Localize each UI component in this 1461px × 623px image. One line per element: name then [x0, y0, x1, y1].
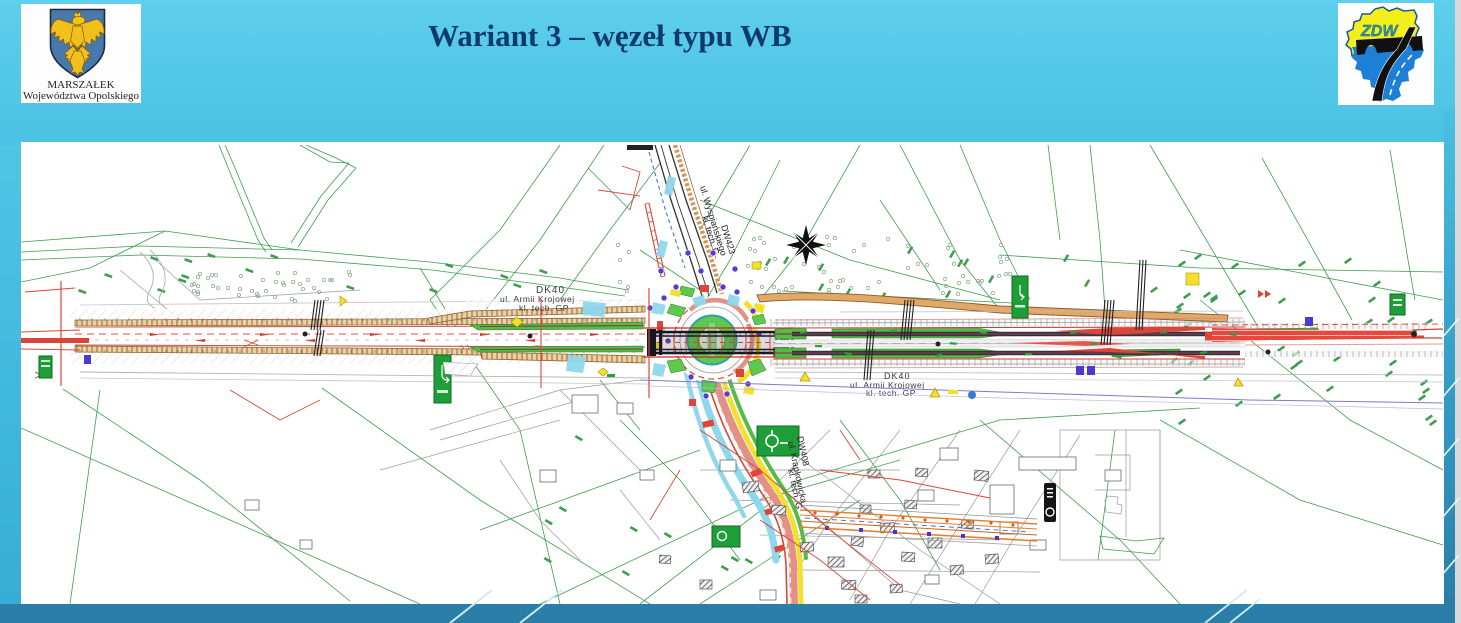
svg-text:kl. tech. GP: kl. tech. GP: [519, 303, 569, 313]
svg-text:ZDW: ZDW: [1360, 23, 1399, 40]
svg-text:kl. tech. GP: kl. tech. GP: [866, 388, 916, 398]
